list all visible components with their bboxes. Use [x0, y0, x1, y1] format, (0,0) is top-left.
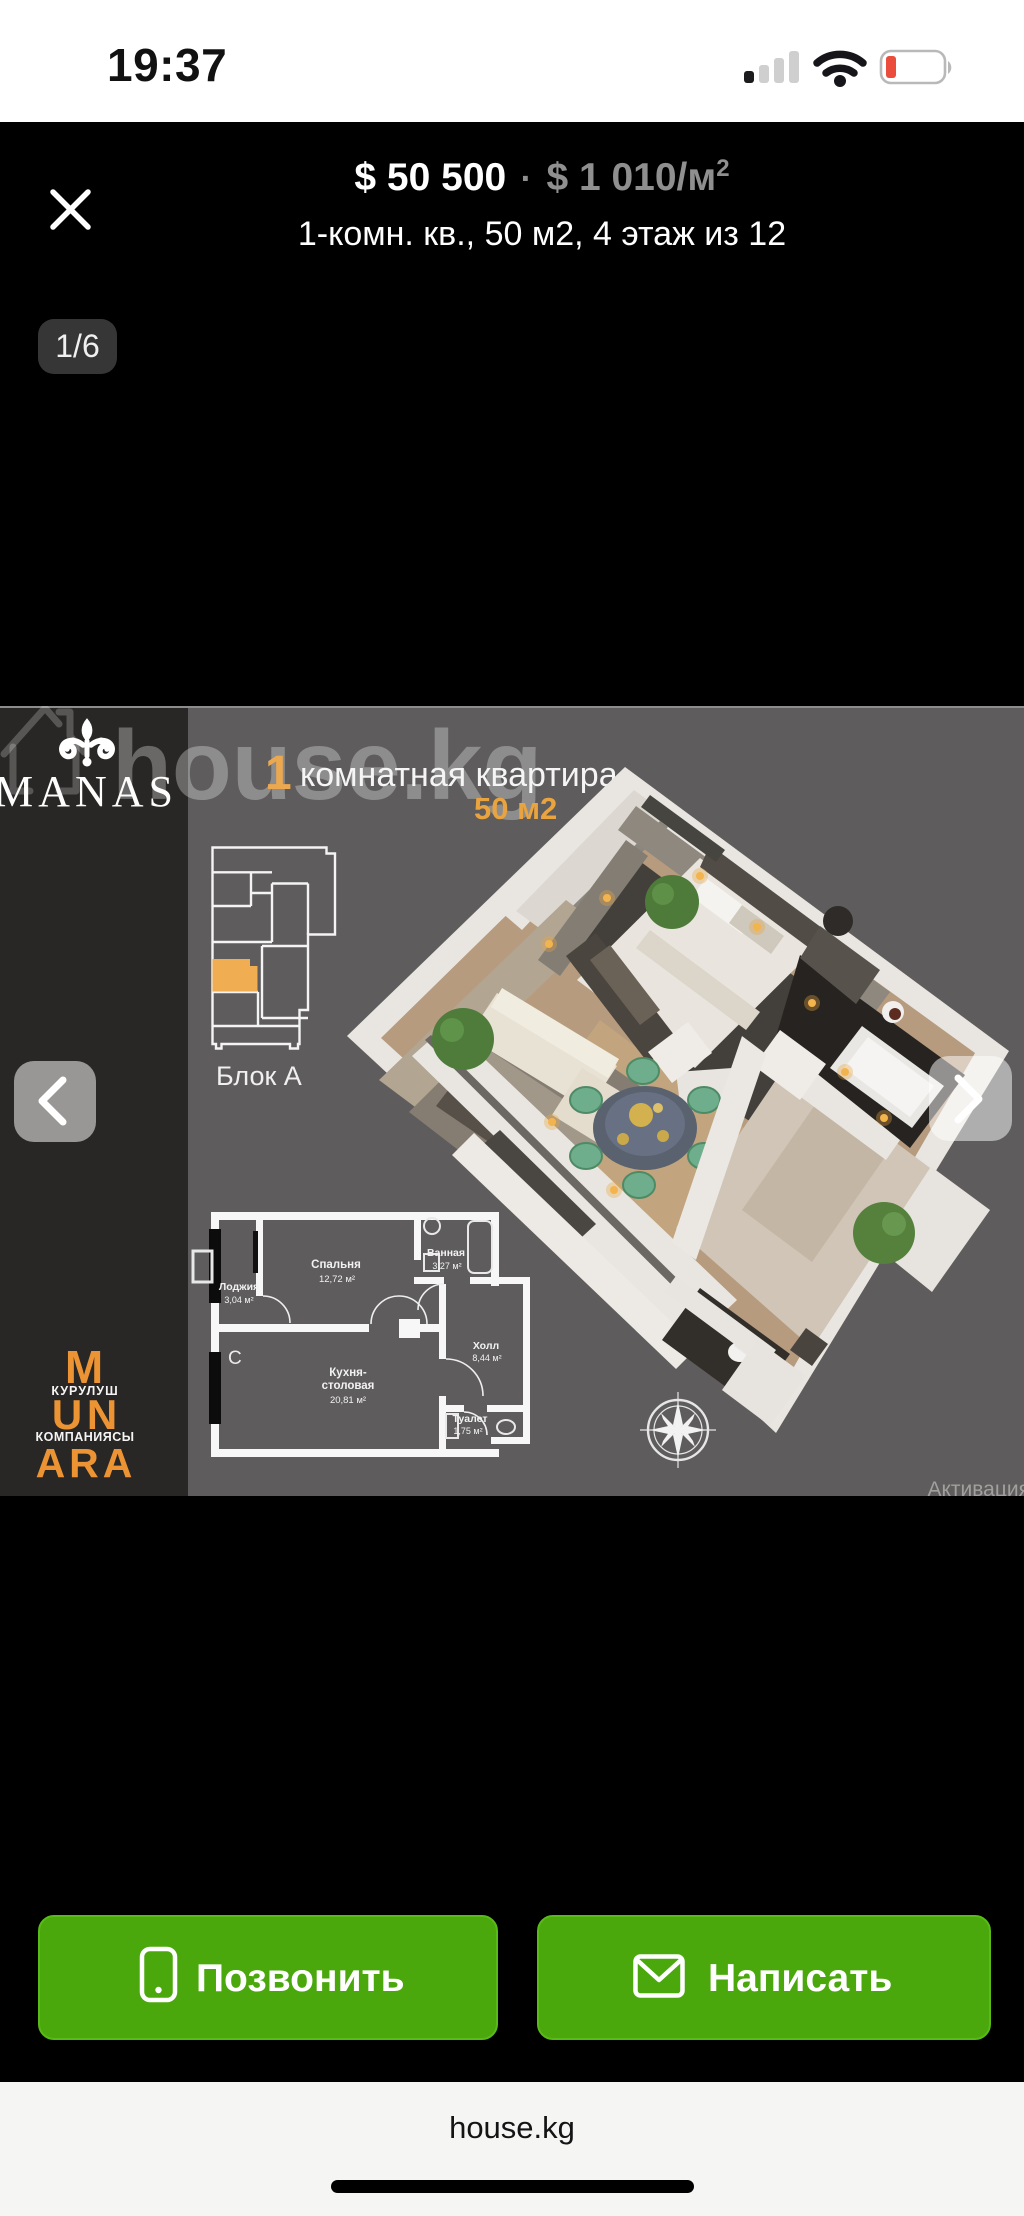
svg-text:Активация: Активация	[927, 1478, 1024, 1496]
svg-text:Блок А: Блок А	[216, 1061, 302, 1091]
svg-text:Лоджия: Лоджия	[219, 1281, 259, 1293]
svg-text:8,44 м²: 8,44 м²	[472, 1353, 501, 1363]
svg-text:Ванная: Ванная	[427, 1247, 465, 1259]
svg-text:3,27 м²: 3,27 м²	[432, 1261, 461, 1271]
svg-text:Холл: Холл	[473, 1340, 499, 1352]
svg-text:50 м2: 50 м2	[474, 791, 557, 826]
svg-text:C: C	[228, 1348, 242, 1369]
svg-text:MANAS: MANAS	[0, 767, 178, 816]
svg-text:3,04 м²: 3,04 м²	[224, 1295, 253, 1305]
svg-text:столовая: столовая	[322, 1380, 375, 1392]
svg-text:20,81 м²: 20,81 м²	[330, 1395, 366, 1406]
svg-text:комнатная квартира: комнатная квартира	[300, 756, 618, 794]
svg-text:Кухня-: Кухня-	[329, 1367, 367, 1379]
svg-text:1: 1	[265, 747, 292, 800]
svg-text:Спальня: Спальня	[311, 1259, 361, 1271]
svg-text:Туалет: Туалет	[453, 1413, 488, 1425]
svg-text:12,72 м²: 12,72 м²	[319, 1274, 355, 1285]
svg-text:ARA: ARA	[36, 1440, 137, 1486]
svg-text:1,75 м²: 1,75 м²	[453, 1426, 482, 1436]
